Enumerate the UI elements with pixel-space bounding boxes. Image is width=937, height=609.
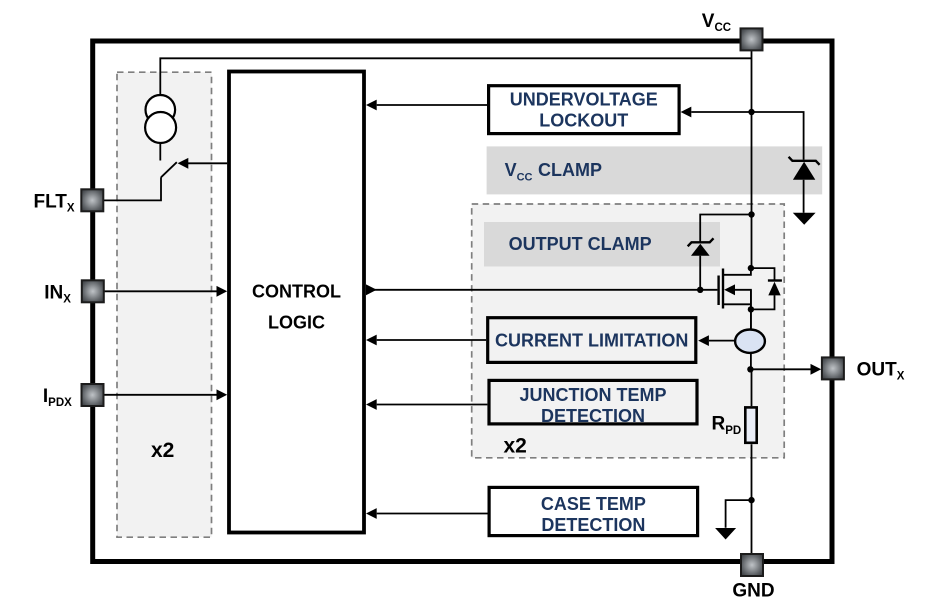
svg-text:IPDX: IPDX: [43, 386, 72, 409]
svg-text:DETECTION: DETECTION: [541, 515, 645, 535]
svg-text:OUTX: OUTX: [857, 359, 905, 382]
svg-text:INX: INX: [44, 282, 71, 305]
svg-text:CONTROL: CONTROL: [252, 282, 341, 302]
svg-text:GND: GND: [732, 581, 774, 602]
svg-text:x2: x2: [151, 439, 174, 462]
svg-text:x2: x2: [504, 435, 527, 458]
svg-text:OUTPUT CLAMP: OUTPUT CLAMP: [509, 234, 652, 254]
svg-text:LOGIC: LOGIC: [268, 312, 325, 332]
svg-text:CURRENT LIMITATION: CURRENT LIMITATION: [495, 331, 688, 351]
svg-text:CASE TEMP: CASE TEMP: [541, 494, 646, 514]
svg-text:UNDERVOLTAGE: UNDERVOLTAGE: [510, 90, 658, 110]
svg-text:FLTX: FLTX: [34, 191, 75, 214]
svg-text:DETECTION: DETECTION: [541, 406, 645, 426]
svg-text:VCC: VCC: [702, 11, 731, 34]
svg-text:JUNCTION TEMP: JUNCTION TEMP: [519, 385, 666, 405]
svg-text:LOCKOUT: LOCKOUT: [539, 111, 628, 131]
